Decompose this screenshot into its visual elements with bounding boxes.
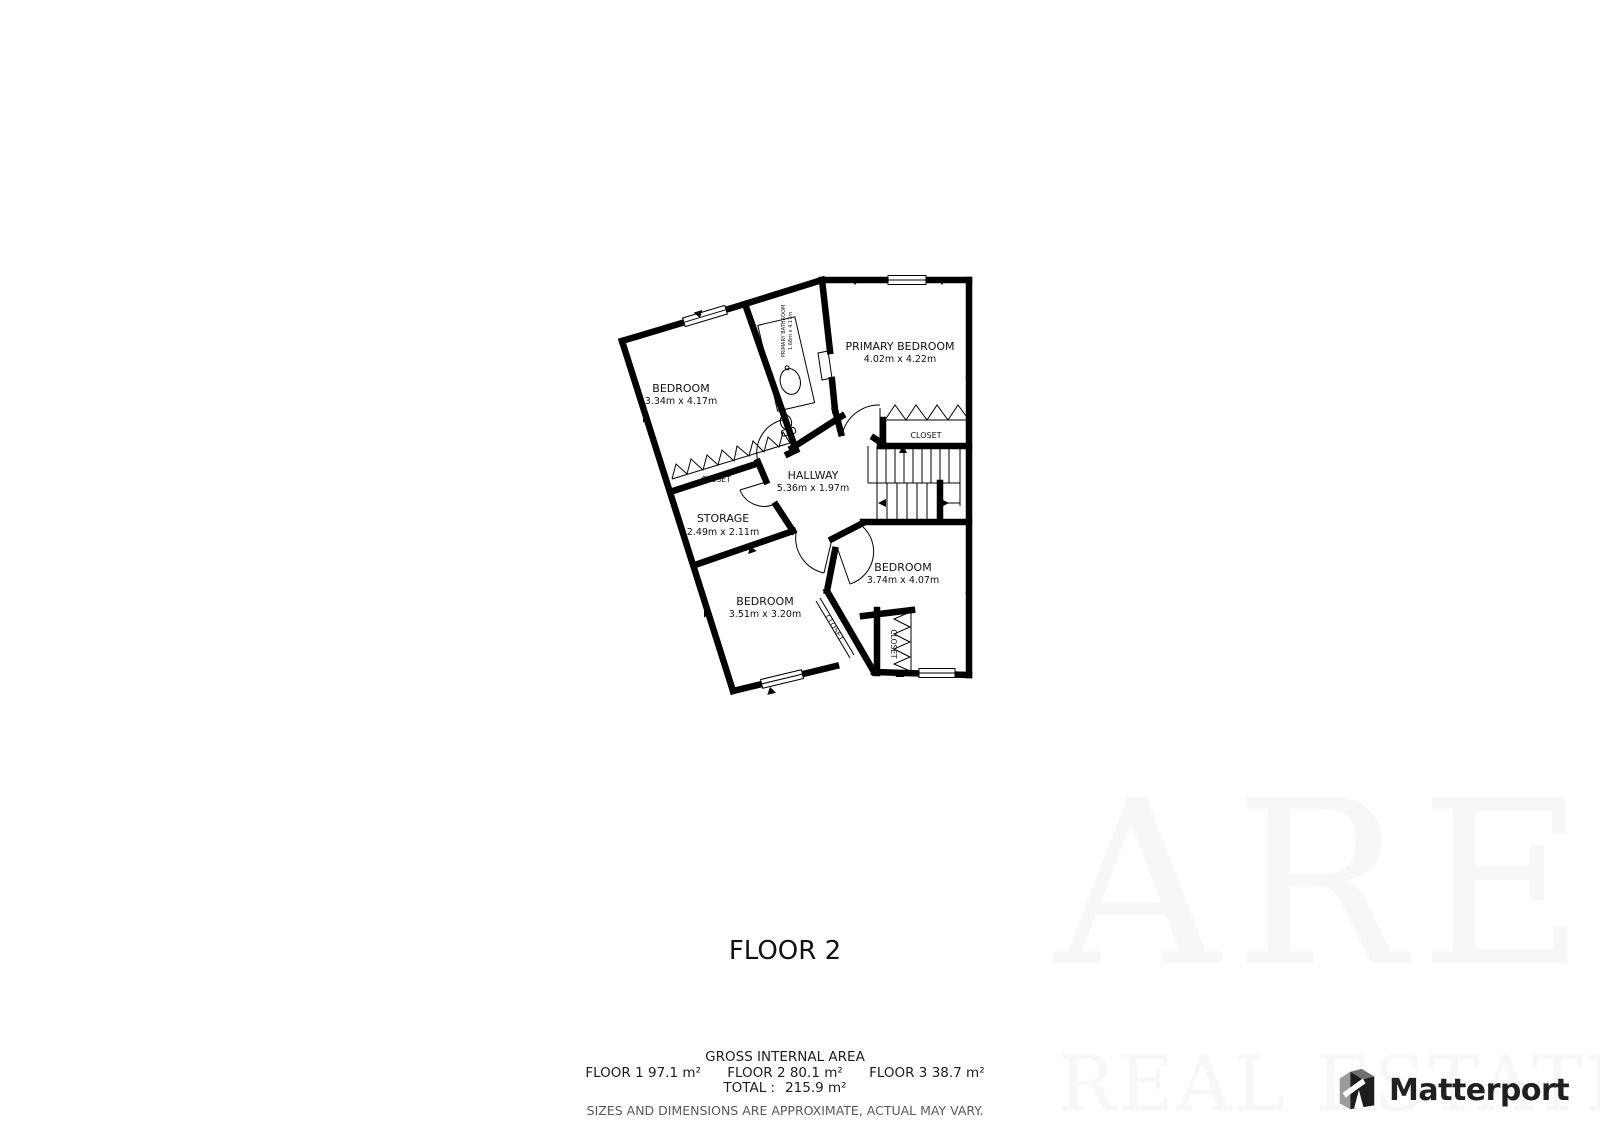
floor2-label: FLOOR 2 (727, 1065, 785, 1081)
window (888, 276, 926, 285)
window (761, 670, 804, 689)
room-label: STORAGE (697, 512, 749, 525)
matterport-logo-text: Matterport (1389, 1073, 1569, 1108)
floor-plan: BEDROOM 3.34m x 4.17m PRIMARY BATHROOM 1… (600, 258, 980, 708)
room-label: HALLWAY (788, 469, 839, 482)
room-dims: 3.51m x 3.20m (729, 609, 801, 620)
floor3-label: FLOOR 3 (869, 1065, 927, 1081)
matterport-logo: Matterport (1334, 1064, 1569, 1116)
closet-label: CLOSET (701, 475, 731, 484)
window (683, 305, 728, 326)
room-label: PRIMARY BATHROOM (781, 305, 787, 357)
closet-label: CLOSET (889, 629, 898, 659)
room-dims: 4.02m x 4.22m (864, 354, 936, 365)
floor2-value: 80.1 m² (790, 1065, 843, 1081)
page: { "plan": { "rooms": [ {"name": "BEDROOM… (0, 0, 1600, 1131)
closet-label: CLOSET (910, 431, 941, 440)
room-dims: 3.34m x 4.17m (645, 396, 717, 407)
matterport-logo-icon (1334, 1067, 1380, 1113)
room-label: BEDROOM (652, 382, 709, 395)
floor3-value: 38.7 m² (932, 1065, 985, 1081)
room-label: BEDROOM (874, 561, 931, 574)
room-dims: 2.49m x 2.11m (687, 527, 759, 538)
room-label: PRIMARY BEDROOM (845, 340, 954, 353)
floor1-value: 97.1 m² (648, 1065, 701, 1081)
room-dims: 3.74m x 4.07m (867, 575, 939, 586)
total-label: TOTAL : (723, 1080, 775, 1096)
stairs (868, 446, 960, 520)
floor1-label: FLOOR 1 (585, 1065, 643, 1081)
room-dims: 1.68m x 4.17m (788, 312, 794, 350)
room-label: BEDROOM (736, 595, 793, 608)
total-value: 215.9 m² (785, 1080, 847, 1096)
room-dims: 5.36m x 1.97m (777, 483, 849, 494)
window (919, 669, 955, 678)
floor2-area: FLOOR 2 80.1 m² (727, 1065, 843, 1081)
floor-title: FLOOR 2 (0, 936, 1570, 966)
floor-plan-svg: BEDROOM 3.34m x 4.17m PRIMARY BATHROOM 1… (600, 258, 980, 708)
floor1-area: FLOOR 1 97.1 m² (585, 1065, 701, 1081)
floor3-area: FLOOR 3 38.7 m² (869, 1065, 985, 1081)
